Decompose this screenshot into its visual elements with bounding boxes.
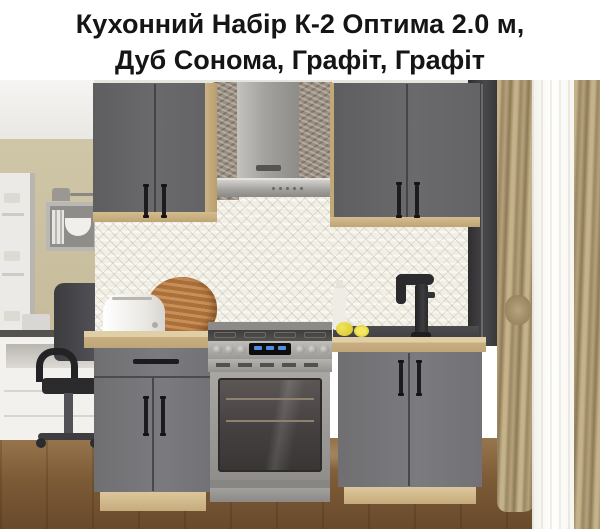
oven-door-bottom [210,480,330,488]
hood-control-button [286,187,289,190]
cabinet-handle [397,184,401,216]
plinth-left-oak [100,492,206,511]
toaster-slot [112,297,152,300]
stove-bottom-drawer [210,488,330,502]
wall-box-shelf [46,202,98,251]
cabinet-door-gap [154,84,156,212]
curtain-right-panel [574,80,600,529]
upper-cabinet-right-oak-bottom [330,217,480,227]
hood-control-button [293,187,296,190]
window-frame-highlight [481,84,483,342]
cabinet-handle [162,186,166,216]
cabinet-handle [417,362,421,394]
cabinet-handle [144,398,148,434]
chair-wheel [36,438,46,448]
cabinet-handle [415,184,419,216]
countertop-right [330,337,486,352]
dishes [4,251,20,261]
stove-knob [213,345,222,354]
curtain-tieback [505,295,531,325]
oven-rack [226,420,314,422]
stove-knob [308,345,317,354]
cabinet-handle [144,186,148,216]
sheer-curtain-folds [532,80,578,529]
cabinet-shelf [2,273,24,276]
cabinet-door-gap [406,84,408,217]
teapot-decor [52,188,70,201]
cabinet-door-gap [152,378,154,491]
burner-grate [274,332,296,338]
stove-knob [320,345,329,354]
stove-display-digits [278,346,286,350]
office-chair-armrest [36,348,78,382]
stove-display-digits [266,346,274,350]
product-title-line2: Дуб Сонома, Графіт, Графіт [0,42,600,78]
burner-grate [304,332,326,338]
upper-cabinet-right-oak-edge [330,83,334,217]
range-hood-brand-label [256,165,281,171]
office-chair-post [64,393,73,437]
stove-knob [296,345,305,354]
burner-grate [244,332,266,338]
product-title: Кухонний Набір К-2 Оптима 2.0 м, Дуб Сон… [0,0,600,80]
base-cabinet-right [338,352,482,487]
dishes [4,311,20,321]
product-image-card: Кухонний Набір К-2 Оптима 2.0 м, Дуб Сон… [0,0,600,529]
upper-cabinet-left [93,83,205,212]
toaster-knob [152,322,158,328]
stove-display-digits [254,346,262,350]
countertop-left [84,331,210,348]
white-bowl [65,218,91,236]
oven-rack [226,398,314,400]
plinth-right-oak [344,487,476,504]
stove-knob [237,345,246,354]
lemon-half [354,325,369,337]
desk-drawer-line [4,415,96,417]
burner-grate [214,332,236,338]
desk-device [22,314,50,331]
stone-texture-panel-right [298,82,332,180]
cabinet-handle [161,398,165,434]
upper-cabinet-left-oak-bottom [93,212,217,222]
drawer-handle [133,359,179,364]
cabinet-shelf [2,213,24,216]
hood-control-button [300,187,303,190]
cabinet-door-gap [408,353,410,486]
oven-vent-slots [216,363,324,367]
hood-control-button [279,187,282,190]
oven-door-glass [218,378,322,472]
product-title-line1: Кухонний Набір К-2 Оптима 2.0 м, [0,6,600,42]
books [52,210,64,244]
cabinet-handle [399,362,403,394]
faucet-spout [396,277,406,304]
upper-cabinet-left-oak-side [205,83,217,214]
ceiling-soffit [0,80,94,141]
office-chair-seat [42,378,98,394]
dishes [4,193,20,203]
lemon [336,322,353,336]
stove-knob [225,345,234,354]
faucet-lever [425,292,435,298]
hood-control-button [272,187,275,190]
